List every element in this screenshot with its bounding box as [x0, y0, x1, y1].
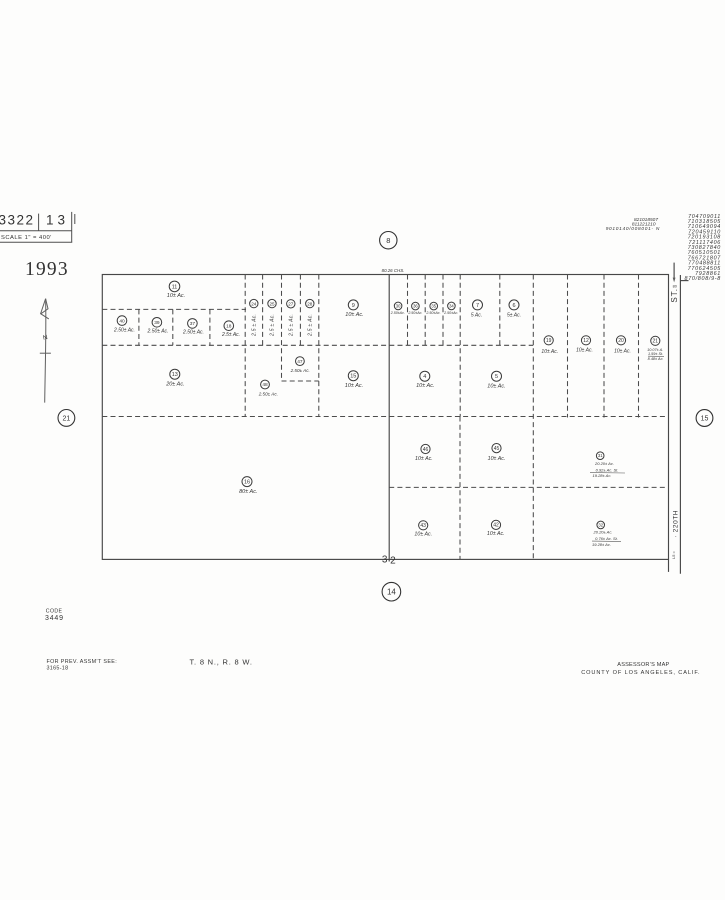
svg-text:2.50± Ac.: 2.50± Ac.	[290, 368, 310, 373]
svg-text:2.5 ± Ac.: 2.5 ± Ac.	[307, 314, 313, 337]
svg-text:34: 34	[449, 303, 454, 308]
svg-text:10± Ac.: 10± Ac.	[345, 383, 363, 389]
svg-text:25: 25	[269, 301, 275, 306]
svg-text:FOR PREV. ASSM’T SEE:: FOR PREV. ASSM’T SEE:	[47, 659, 118, 665]
svg-text:3165-18: 3165-18	[47, 666, 69, 672]
svg-text:9: 9	[352, 303, 355, 309]
svg-text:14: 14	[387, 588, 396, 597]
svg-text:2.50± Ac.: 2.50± Ac.	[113, 328, 135, 334]
svg-text:10± Ac.: 10± Ac.	[576, 347, 593, 353]
svg-text:36: 36	[413, 304, 418, 309]
svg-text:11: 11	[172, 285, 178, 291]
svg-text:2.50± Ac.: 2.50± Ac.	[182, 330, 204, 336]
svg-text:10± Ac.: 10± Ac.	[415, 456, 433, 462]
svg-text:8.48± Ac.: 8.48± Ac.	[648, 357, 664, 361]
svg-text:ST.: ST.	[670, 288, 679, 303]
svg-text:20.20± Ac.: 20.20± Ac.	[594, 461, 614, 466]
svg-text:COUNTY OF LOS ANGELES, CALIF.: COUNTY OF LOS ANGELES, CALIF.	[581, 670, 700, 676]
svg-text:30: 30	[396, 303, 401, 308]
svg-text:L5 =: L5 =	[671, 550, 676, 559]
svg-text:10± Ac.: 10± Ac.	[541, 349, 558, 355]
svg-text:42: 42	[493, 523, 499, 529]
svg-text:2.50±Ac.: 2.50±Ac.	[443, 311, 458, 315]
svg-text:80: 80	[673, 284, 677, 288]
svg-text:2: 2	[390, 555, 396, 566]
svg-text:43: 43	[420, 523, 426, 529]
svg-text:10± Ac.: 10± Ac.	[614, 348, 631, 354]
svg-text:3322: 3322	[0, 213, 35, 228]
svg-text:2.50±Ac.: 2.50±Ac.	[407, 311, 422, 315]
svg-text:ASSESSOR’S MAP: ASSESSOR’S MAP	[617, 662, 669, 668]
svg-text:10± Ac.: 10± Ac.	[414, 531, 432, 537]
svg-text:46: 46	[423, 447, 429, 453]
svg-text:27: 27	[288, 302, 294, 307]
svg-text:10± Ac.: 10± Ac.	[487, 531, 505, 537]
svg-text:32: 32	[598, 522, 603, 527]
svg-text:20.20± Ac.: 20.20± Ac.	[593, 530, 613, 535]
svg-text:1993: 1993	[25, 259, 69, 280]
svg-text:2.5 ± Ac.: 2.5 ± Ac.	[251, 314, 257, 337]
svg-text:10± Ac.: 10± Ac.	[345, 312, 363, 318]
svg-text:SCALE 1" = 400′: SCALE 1" = 400′	[1, 235, 52, 241]
svg-text:12: 12	[583, 338, 589, 344]
svg-text:4: 4	[423, 374, 426, 380]
svg-text:48: 48	[262, 382, 268, 388]
svg-text:80.26 CHS.: 80.26 CHS.	[382, 268, 405, 273]
svg-text:45: 45	[494, 446, 500, 452]
svg-text:2.50±Ac.: 2.50±Ac.	[390, 311, 405, 315]
svg-text:20: 20	[618, 338, 624, 344]
svg-text:6: 6	[512, 303, 515, 309]
svg-text:2.5 ± Ac.: 2.5 ± Ac.	[288, 314, 294, 337]
svg-text:40: 40	[119, 318, 125, 324]
svg-text:28: 28	[307, 301, 313, 306]
svg-text:2.5± Ac.: 2.5± Ac.	[221, 332, 240, 338]
svg-text:5: 5	[495, 374, 498, 380]
svg-text:8: 8	[386, 236, 390, 245]
svg-text:10.07± A.: 10.07± A.	[647, 348, 663, 352]
svg-text:7: 7	[476, 303, 479, 309]
svg-text:21: 21	[653, 339, 659, 345]
svg-text:31: 31	[598, 453, 603, 458]
svg-text:13: 13	[172, 372, 178, 378]
svg-text:20± Ac.: 20± Ac.	[165, 381, 184, 387]
svg-text:N: N	[42, 334, 48, 342]
svg-text:5 Ac.: 5 Ac.	[471, 312, 482, 318]
svg-text:39: 39	[154, 320, 160, 326]
svg-text:10± Ac.: 10± Ac.	[487, 384, 505, 390]
svg-text:10± Ac.: 10± Ac.	[416, 383, 434, 389]
svg-text:18: 18	[226, 323, 232, 329]
svg-text:T. 8 N., R. 8 W.: T. 8 N., R. 8 W.	[190, 657, 253, 666]
svg-text:15: 15	[350, 374, 356, 380]
svg-text:· 220TH: · 220TH	[673, 510, 680, 538]
svg-text:47: 47	[297, 359, 303, 365]
svg-text:19: 19	[546, 338, 552, 344]
svg-text:1.59± St.: 1.59± St.	[648, 352, 663, 356]
svg-text:80± Ac.: 80± Ac.	[239, 489, 257, 495]
svg-text:10± Ac.: 10± Ac.	[488, 456, 506, 462]
svg-text:13: 13	[46, 213, 69, 228]
svg-text:2.50± Ac.: 2.50± Ac.	[147, 329, 169, 335]
svg-text:0.76± Ac. St.: 0.76± Ac. St.	[595, 536, 618, 541]
svg-text:19.28± Ac.: 19.28± Ac.	[592, 542, 611, 547]
svg-text:3449: 3449	[45, 615, 64, 622]
svg-text:2.50±Ac.: 2.50±Ac.	[425, 311, 440, 315]
svg-text:16: 16	[244, 480, 250, 486]
svg-text:870/808/9-8: 870/808/9-8	[685, 276, 721, 282]
svg-text:9010140/008001- N: 9010140/008001- N	[606, 226, 660, 232]
svg-text:35: 35	[431, 304, 436, 309]
svg-text:24: 24	[251, 301, 257, 306]
svg-text:15: 15	[701, 416, 709, 423]
svg-text:19.28± Ac.: 19.28± Ac.	[593, 473, 612, 478]
svg-text:CODE: CODE	[46, 609, 63, 615]
svg-text:0.92± Ac. St.: 0.92± Ac. St.	[596, 467, 619, 472]
svg-text:2.50± Ac.: 2.50± Ac.	[258, 392, 278, 397]
svg-text:5± Ac.: 5± Ac.	[507, 312, 521, 318]
svg-text:21: 21	[63, 416, 71, 423]
svg-text:3: 3	[382, 555, 388, 566]
svg-text:2.5 ± Ac.: 2.5 ± Ac.	[270, 314, 276, 337]
svg-text:37: 37	[190, 321, 196, 327]
svg-text:10± Ac.: 10± Ac.	[167, 293, 185, 299]
